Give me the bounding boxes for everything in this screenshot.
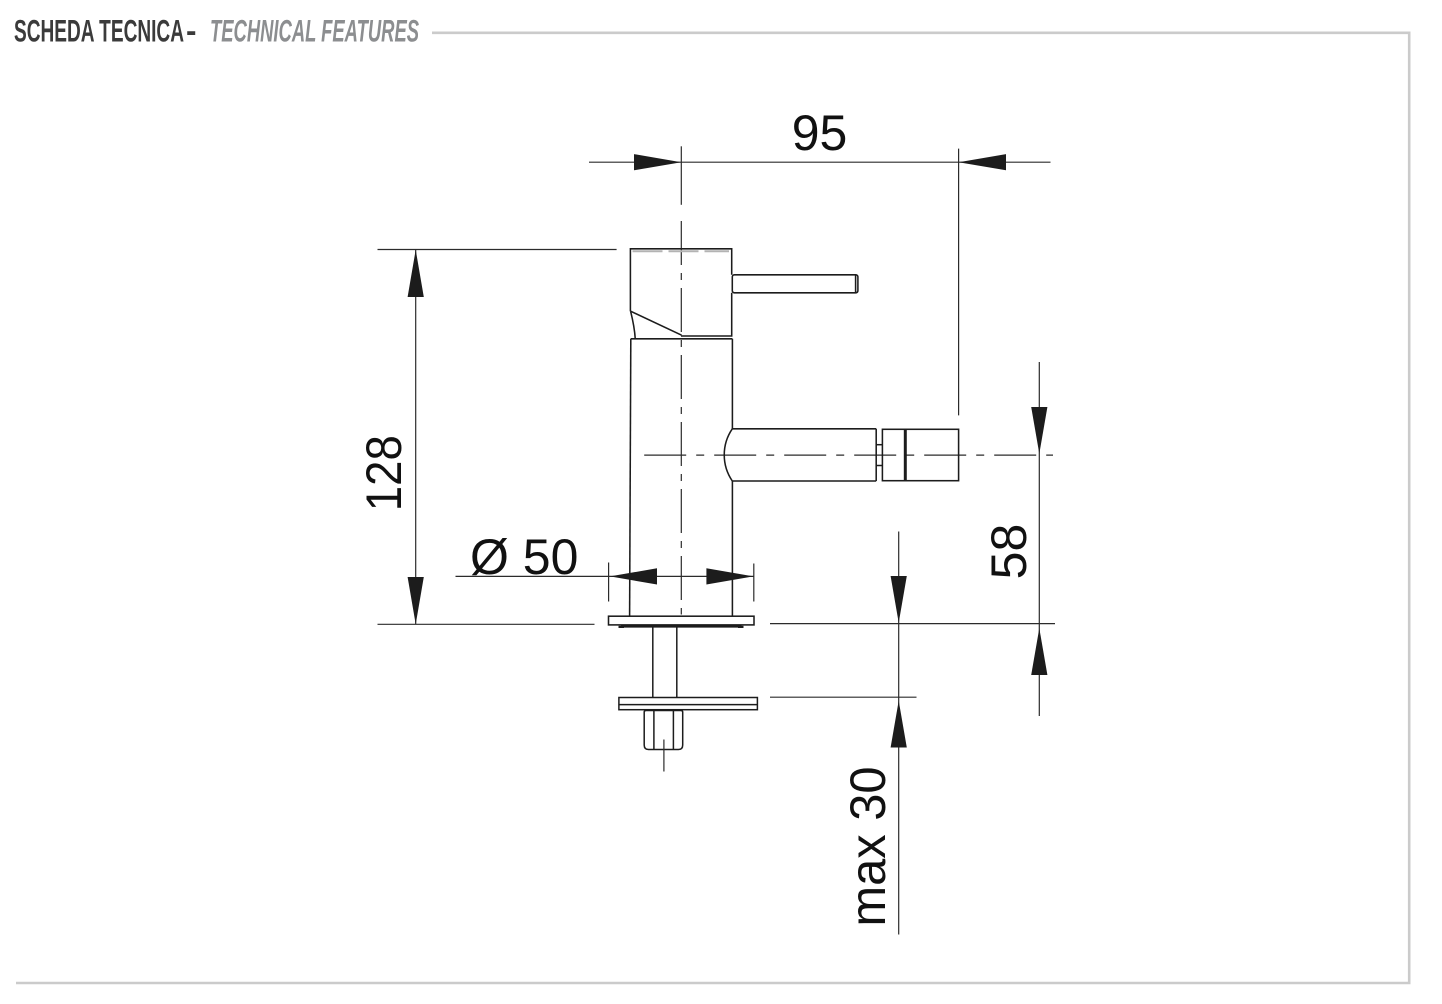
svg-text:95: 95 — [792, 105, 848, 161]
svg-text:128: 128 — [356, 435, 412, 511]
svg-text:SCHEDA TECNICA: SCHEDA TECNICA — [14, 13, 184, 49]
svg-text:-: - — [186, 13, 197, 49]
svg-text:TECHNICAL FEATURES: TECHNICAL FEATURES — [210, 13, 419, 49]
svg-text:max 30: max 30 — [840, 767, 896, 927]
svg-text:58: 58 — [981, 524, 1037, 580]
svg-text:Ø 50: Ø 50 — [470, 529, 578, 585]
